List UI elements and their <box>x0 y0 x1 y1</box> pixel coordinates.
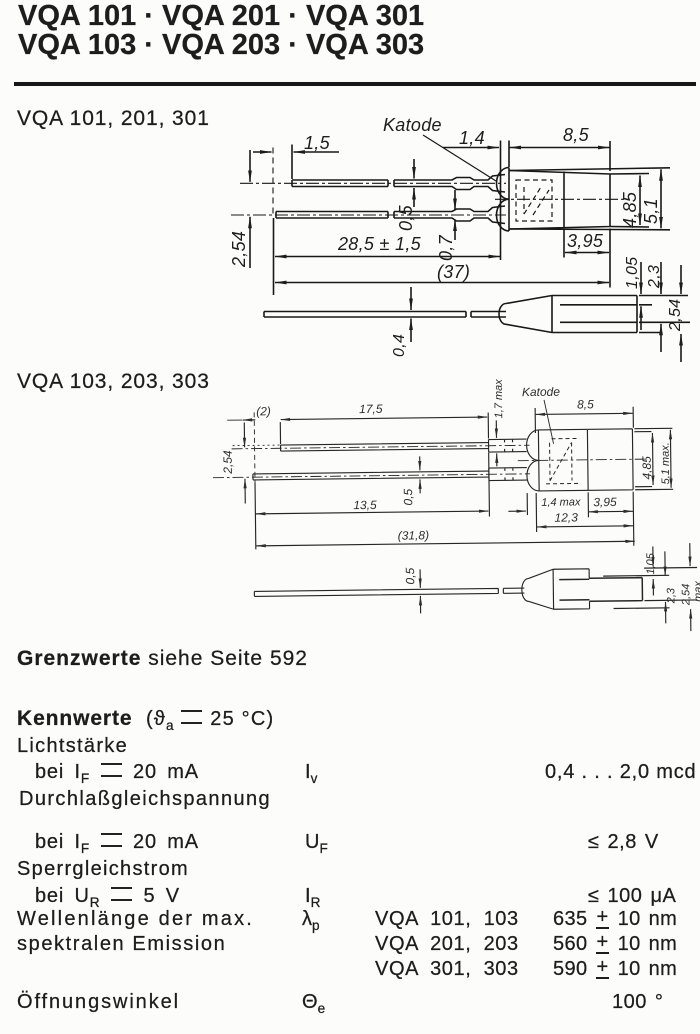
svg-text:2,54: 2,54 <box>221 450 235 475</box>
svg-text:5,1: 5,1 <box>641 198 661 224</box>
svg-text:1,7 max: 1,7 max <box>493 379 505 419</box>
svg-text:0,5: 0,5 <box>403 567 417 584</box>
svg-text:0,5: 0,5 <box>396 204 416 231</box>
svg-text:2,54: 2,54 <box>667 299 684 332</box>
svg-text:2,3: 2,3 <box>646 265 663 289</box>
svg-text:1,4: 1,4 <box>459 128 485 148</box>
svg-text:17,5: 17,5 <box>359 402 383 416</box>
svg-text:8,5: 8,5 <box>577 397 594 411</box>
svg-text:1,4 max: 1,4 max <box>541 496 581 508</box>
svg-text:13,5: 13,5 <box>353 498 377 512</box>
svg-text:12,3: 12,3 <box>554 510 578 524</box>
svg-text:0,5: 0,5 <box>401 488 415 505</box>
svg-text:Katode: Katode <box>522 385 561 399</box>
svg-text:4,85: 4,85 <box>620 191 640 228</box>
svg-text:0,7: 0,7 <box>436 234 456 261</box>
svg-text:max.: max. <box>692 578 700 602</box>
svg-text:2,54: 2,54 <box>680 584 692 607</box>
svg-text:2,54: 2,54 <box>229 231 249 268</box>
svg-text:28,5 ± 1,5: 28,5 ± 1,5 <box>337 234 422 254</box>
svg-text:3,95: 3,95 <box>567 231 604 251</box>
svg-text:(37): (37) <box>437 262 470 282</box>
svg-text:3,95: 3,95 <box>593 495 617 509</box>
svg-text:8,5: 8,5 <box>563 125 590 145</box>
svg-text:2,3: 2,3 <box>665 587 677 604</box>
svg-text:Katode: Katode <box>383 115 442 135</box>
svg-text:(2): (2) <box>256 404 271 418</box>
svg-text:5,1 max.: 5,1 max. <box>660 442 673 484</box>
svg-text:1,5: 1,5 <box>304 133 331 153</box>
svg-text:4,85: 4,85 <box>640 456 654 480</box>
svg-text:0,4: 0,4 <box>391 334 408 357</box>
svg-text:1,05: 1,05 <box>645 552 657 574</box>
svg-text:(31,8): (31,8) <box>398 528 430 542</box>
svg-text:1,05: 1,05 <box>624 257 641 289</box>
